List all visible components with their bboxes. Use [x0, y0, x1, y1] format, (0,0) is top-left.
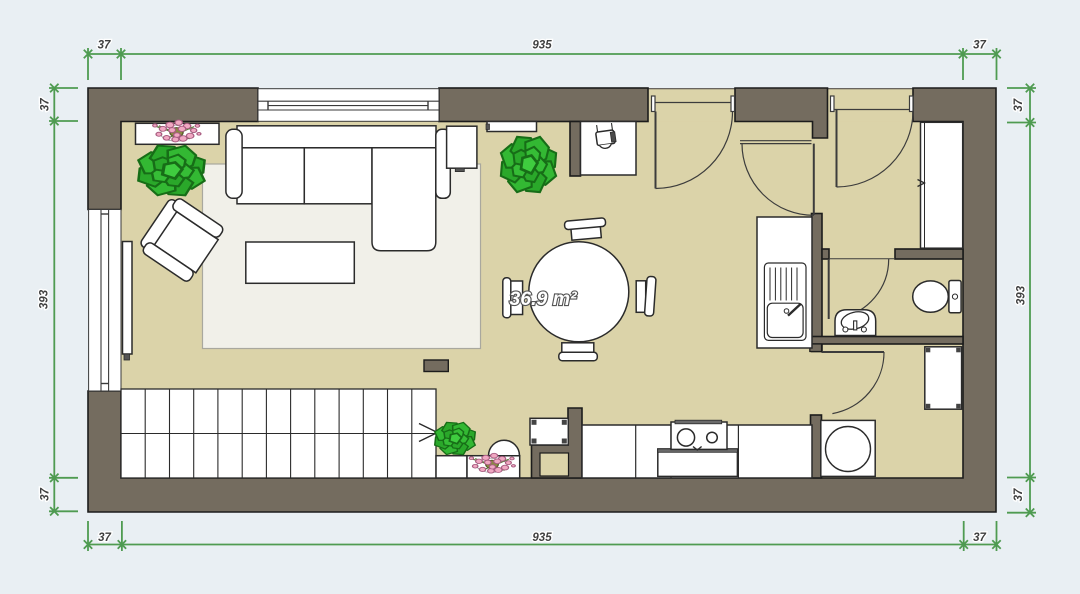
svg-text:393: 393 [1016, 285, 1028, 305]
svg-text:37: 37 [1013, 98, 1025, 111]
svg-text:36.9 m²: 36.9 m² [509, 288, 577, 310]
svg-text:935: 935 [532, 40, 552, 52]
svg-text:37: 37 [973, 532, 986, 544]
svg-text:37: 37 [1013, 488, 1025, 501]
svg-text:935: 935 [532, 532, 552, 544]
svg-text:37: 37 [40, 488, 52, 501]
svg-text:393: 393 [39, 289, 51, 309]
svg-text:37: 37 [98, 532, 111, 544]
svg-text:37: 37 [40, 98, 52, 111]
svg-text:37: 37 [98, 40, 111, 52]
svg-text:37: 37 [973, 40, 986, 52]
